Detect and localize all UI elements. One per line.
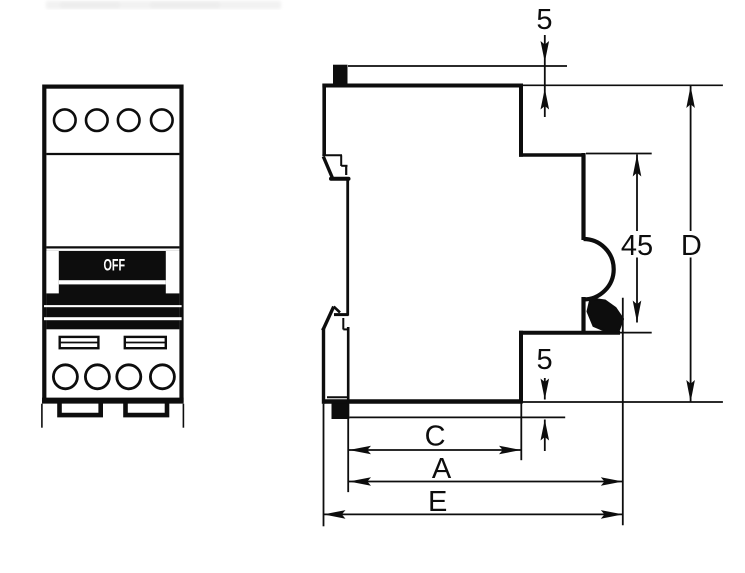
svg-text:OFF: OFF (104, 257, 126, 275)
svg-text:A: A (432, 453, 452, 485)
svg-text:45: 45 (621, 230, 653, 262)
svg-text:5: 5 (536, 4, 552, 36)
svg-text:D: D (681, 230, 702, 262)
svg-text:E: E (428, 486, 447, 518)
svg-text:5: 5 (537, 344, 553, 376)
svg-text:C: C (425, 421, 446, 453)
